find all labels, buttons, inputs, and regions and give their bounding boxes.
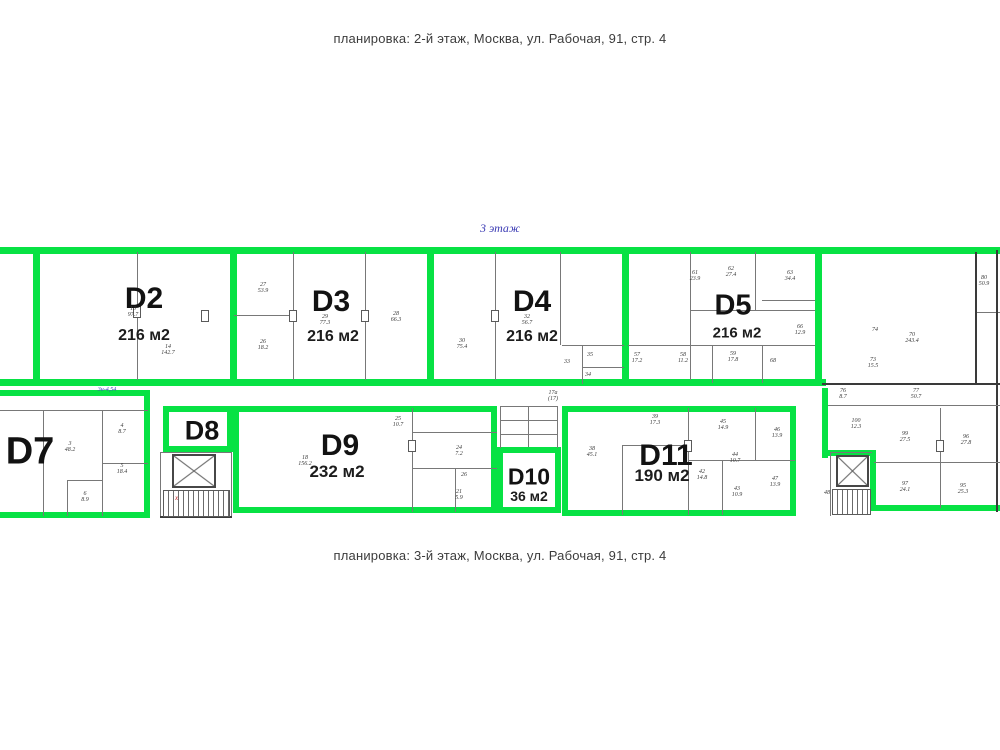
green-line-right-1	[822, 388, 828, 458]
staircase	[832, 489, 871, 515]
room-label: 45 14.9	[718, 419, 729, 431]
room-label: 62 27.4	[726, 266, 737, 278]
green-divider-d5-right	[815, 247, 822, 386]
room-label: 14 142.7	[161, 344, 175, 356]
unit-d9-name: D9	[321, 429, 359, 463]
wall-line	[500, 406, 558, 407]
wall-line	[500, 406, 501, 448]
dimension-note: 3н-4,54	[98, 387, 116, 393]
wall-line	[160, 452, 232, 453]
green-divider-d3-d4	[427, 247, 434, 386]
wall-line	[762, 346, 763, 383]
unit-d2-area: 216 м2	[118, 327, 170, 345]
room-label: 96 27.8	[961, 434, 972, 446]
room-label: 48	[824, 490, 830, 496]
unit-d5-area: 216 м2	[713, 325, 762, 342]
room-label: 26 18.2	[258, 339, 269, 351]
wall-line	[582, 346, 583, 384]
room-label: 47 13.9	[770, 476, 781, 488]
room-label: 13 97.7	[128, 306, 139, 318]
room-label: 66 12.9	[795, 324, 806, 336]
room-label: 68	[770, 358, 776, 364]
room-label: 80 50.9	[979, 275, 990, 287]
room-label: 35	[587, 352, 593, 358]
room-label: 59 17.8	[728, 351, 739, 363]
room-label: 24 7.2	[455, 445, 463, 457]
green-border-top-strip-bottom	[0, 379, 826, 386]
unit-d10-name: D10	[508, 464, 550, 491]
wall-line	[874, 462, 1000, 463]
wc-note: 17а (17)	[548, 390, 558, 402]
green-divider-d2-d3	[230, 247, 237, 386]
room-label: 77 50.7	[911, 388, 922, 400]
unit-d4-area: 216 м2	[506, 328, 558, 346]
room-label: 30 75.4	[457, 338, 468, 350]
room-label: 27 53.9	[258, 282, 269, 294]
wall-line	[830, 452, 872, 453]
door-mark	[936, 440, 944, 452]
room-label: 73 15.5	[868, 357, 879, 369]
wall-line	[628, 345, 815, 346]
green-divider-d4-d5	[622, 247, 629, 386]
wall-line	[231, 452, 232, 518]
unit-d3-area: 216 м2	[307, 328, 359, 346]
room-label: 3 48.2	[65, 441, 76, 453]
room-label: 58 11.2	[678, 352, 688, 364]
room-label: 95 25.3	[958, 483, 969, 495]
room-label: 21 5.9	[455, 489, 463, 501]
unit-d7-name: D7	[6, 431, 55, 474]
room-label: 38 45.1	[587, 446, 598, 458]
unit-d10-area: 36 м2	[510, 488, 548, 504]
wall-line	[940, 408, 941, 508]
unit-d11-area: 190 м2	[634, 466, 689, 486]
wall-line	[67, 480, 102, 481]
room-label: 43 10.9	[732, 486, 743, 498]
wall-line	[755, 408, 756, 460]
door-mark	[408, 440, 416, 452]
caption-top: планировка: 2-й этаж, Москва, ул. Рабоча…	[0, 31, 1000, 46]
room-label: 25 10.7	[393, 416, 404, 428]
wall-line	[975, 252, 977, 383]
wall-line	[412, 408, 413, 512]
room-label: 100 12.3	[851, 418, 862, 430]
wall-line	[712, 346, 713, 383]
elevator-shaft	[172, 454, 216, 488]
unit-d5-name: D5	[714, 290, 751, 323]
room-label: 4 8.7	[118, 423, 126, 435]
room-label: 18 156.2	[298, 455, 312, 467]
wall-line	[828, 405, 1000, 406]
room-label: 63 34.4	[785, 270, 796, 282]
wall-line	[690, 310, 815, 311]
door-mark	[201, 310, 209, 322]
wall-line	[689, 460, 795, 461]
wall-line	[160, 452, 161, 518]
unit-d9-area: 232 м2	[309, 462, 364, 482]
room-label: 61 23.9	[690, 270, 701, 282]
wall-line	[722, 461, 723, 515]
room-label: 57 17.2	[632, 352, 643, 364]
elevator-shaft	[836, 455, 869, 487]
stair-mark: х	[175, 494, 178, 502]
wall-line	[557, 406, 558, 448]
wall-line	[67, 480, 68, 516]
wall-line	[996, 250, 998, 512]
room-label: 42 14.8	[697, 469, 708, 481]
green-border-top	[0, 247, 1000, 254]
door-mark	[289, 310, 297, 322]
wall-line	[562, 345, 624, 346]
room-label: 97 24.1	[900, 481, 911, 493]
room-label: 6 8.9	[81, 491, 89, 503]
wall-line	[560, 252, 561, 345]
room-label: 46 13.9	[772, 427, 783, 439]
green-line-right-4	[870, 505, 1000, 511]
wall-line	[622, 446, 623, 515]
door-mark	[491, 310, 499, 322]
room-label: 44 10.7	[730, 452, 741, 464]
wall-line	[528, 407, 529, 447]
wall-line	[583, 367, 624, 368]
wall-line	[822, 383, 1000, 385]
door-mark	[361, 310, 369, 322]
wall-line	[234, 315, 293, 316]
wall-line	[0, 410, 148, 411]
floor-label: 3 этаж	[0, 221, 1000, 236]
room-label: 70 243.4	[905, 332, 919, 344]
room-label: 74	[872, 327, 878, 333]
room-label: 39 17.3	[650, 414, 661, 426]
room-label: 76 8.7	[839, 388, 847, 400]
room-label: 5 18.4	[117, 463, 128, 475]
floorplan-screenshot: планировка: 2-й этаж, Москва, ул. Рабоча…	[0, 0, 1000, 750]
wall-line	[413, 432, 497, 433]
staircase	[163, 490, 230, 517]
room-label: 33	[564, 359, 570, 365]
wall-line	[755, 252, 756, 310]
room-label: 28 66.3	[391, 311, 402, 323]
room-label: 32 56.7	[522, 314, 533, 326]
green-divider-d1-d2	[33, 247, 40, 386]
caption-bottom: планировка: 3-й этаж, Москва, ул. Рабоча…	[0, 548, 1000, 563]
room-label: 99 27.5	[900, 431, 911, 443]
room-label: 34	[585, 372, 591, 378]
wall-line	[830, 452, 831, 516]
room-label: 29 77.3	[320, 314, 331, 326]
wall-line	[762, 300, 815, 301]
unit-d8-name: D8	[185, 416, 220, 447]
unit-d3-name: D3	[312, 285, 350, 319]
room-label: 26	[461, 472, 467, 478]
